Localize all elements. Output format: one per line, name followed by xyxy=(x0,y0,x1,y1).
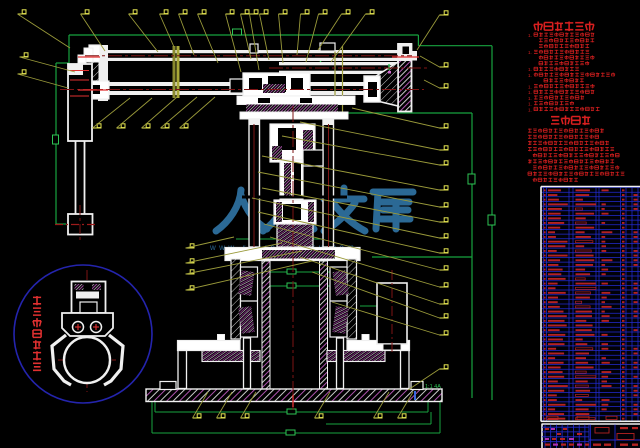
svg-text:1.: 1. xyxy=(528,33,532,38)
svg-text:1.: 1. xyxy=(528,73,532,78)
svg-text:1.: 1. xyxy=(528,90,532,95)
svg-text:1.: 1. xyxy=(528,84,532,89)
svg-text:1.: 1. xyxy=(528,96,532,101)
svg-text:1.: 1. xyxy=(528,102,532,107)
svg-text:1.: 1. xyxy=(528,107,532,112)
svg-text:1.: 1. xyxy=(528,50,532,55)
svg-text:1.: 1. xyxy=(528,67,532,72)
